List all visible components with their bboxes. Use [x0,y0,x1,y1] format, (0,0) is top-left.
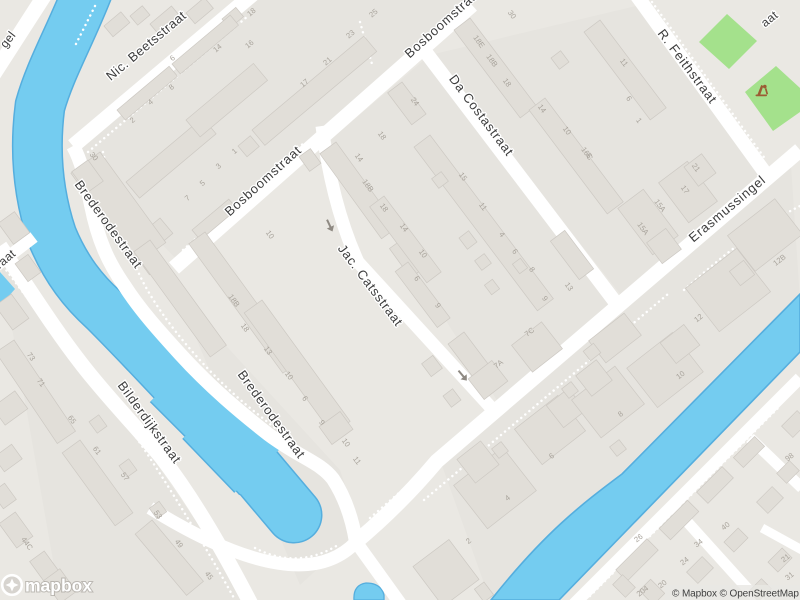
svg-text:© Mapbox © OpenStreetMap: © Mapbox © OpenStreetMap [672,589,799,600]
svg-text:mapbox: mapbox [25,576,92,596]
